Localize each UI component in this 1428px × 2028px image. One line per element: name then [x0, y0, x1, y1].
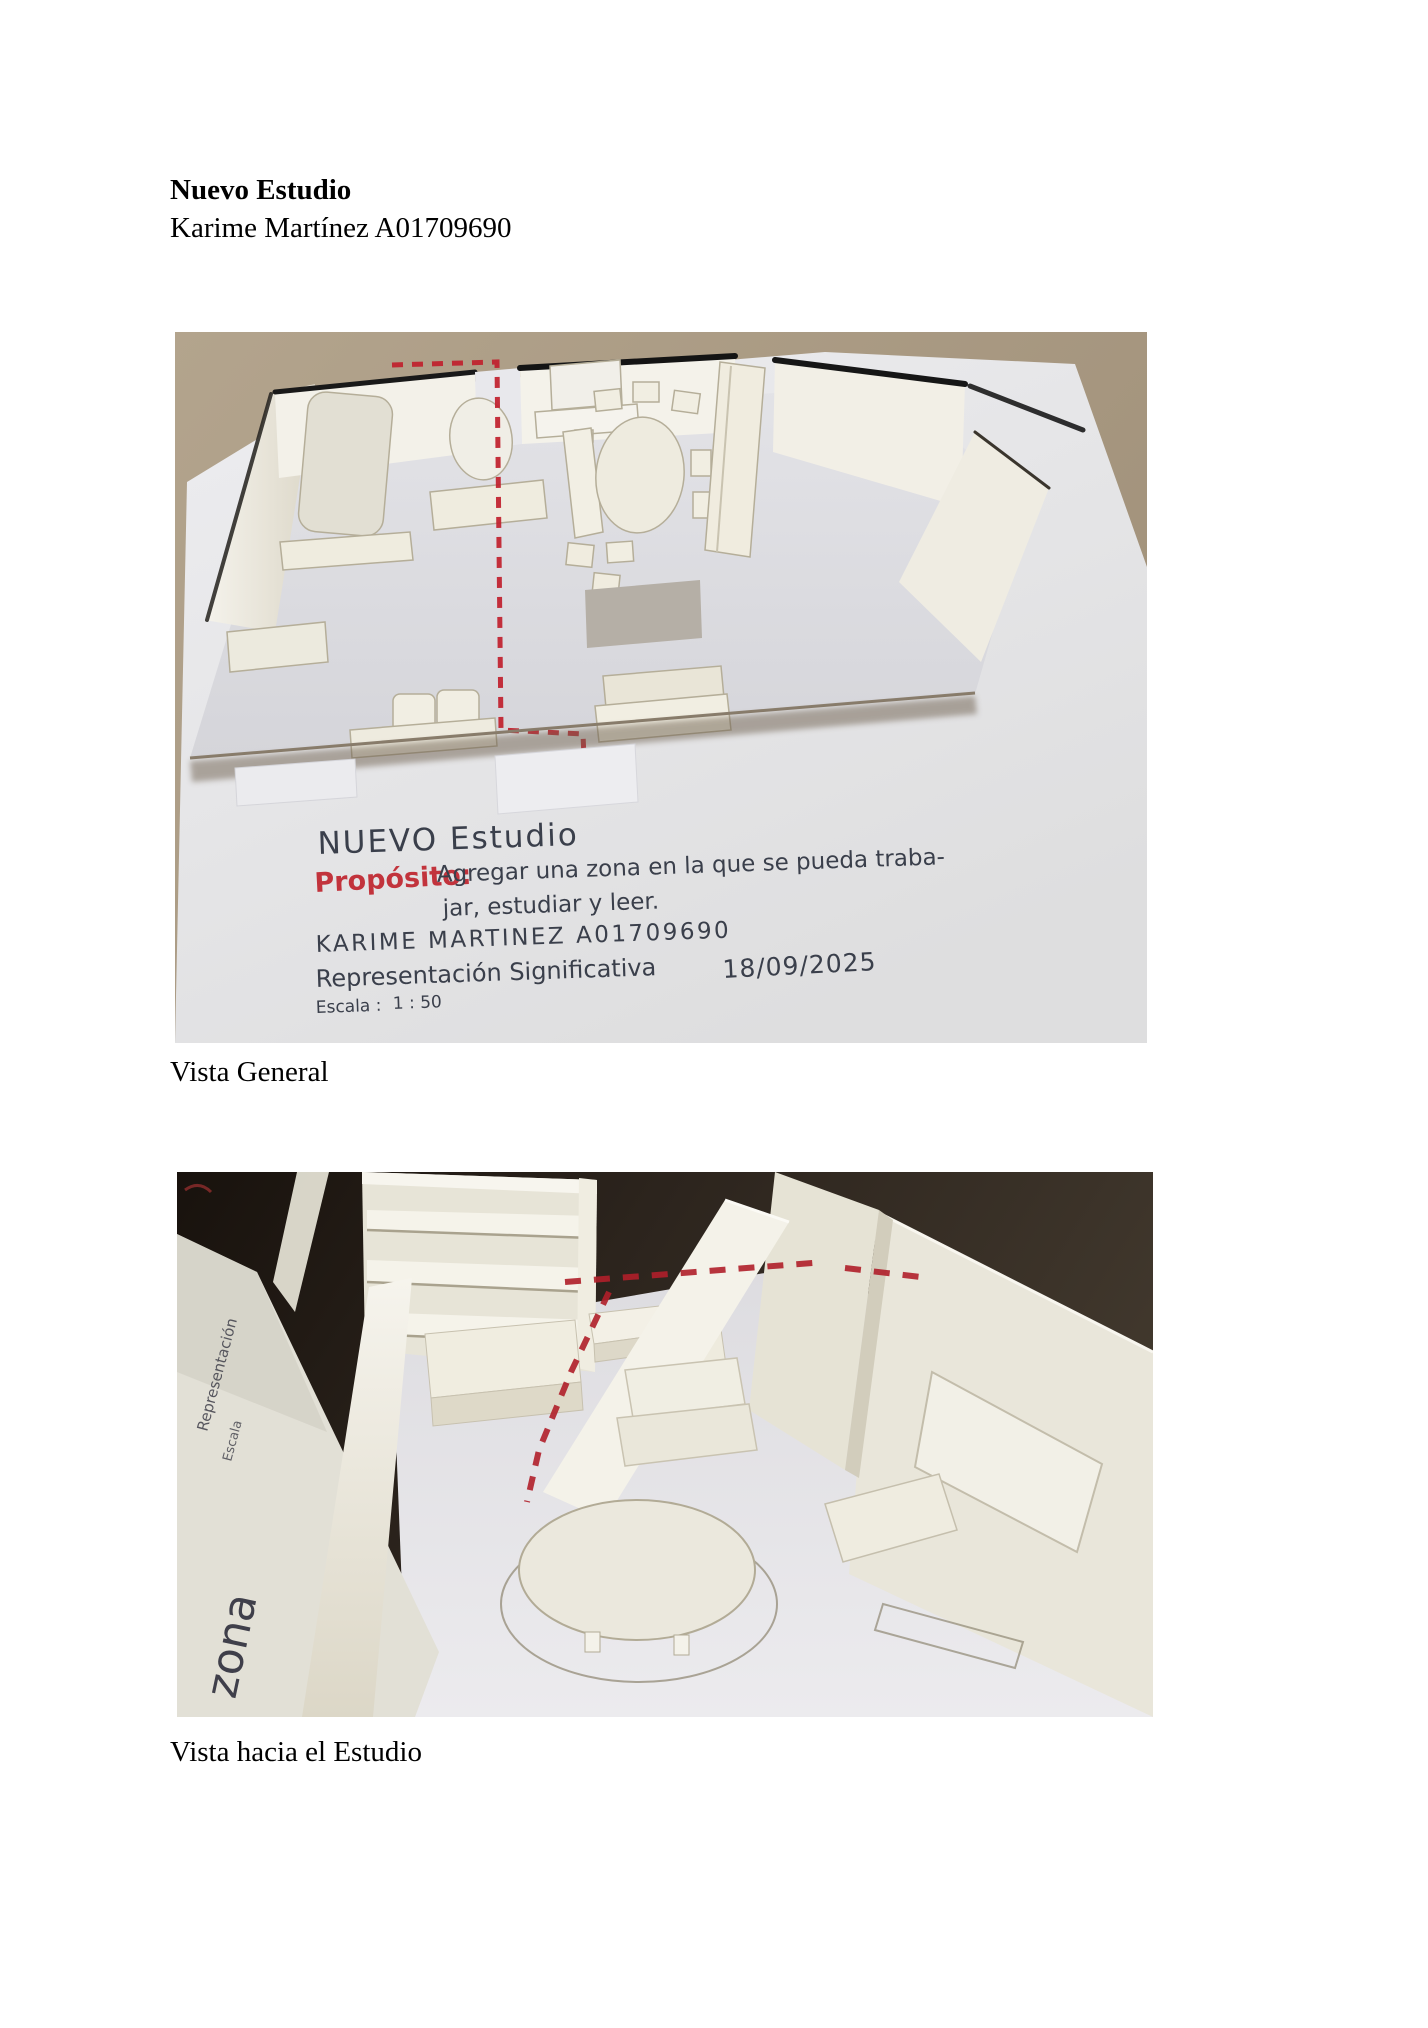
table-leg — [585, 1632, 600, 1652]
chair — [633, 382, 659, 402]
document-page: { "document": { "title": "Nuevo Estudio"… — [0, 0, 1428, 2028]
author-line: Karime Martínez A01709690 — [170, 210, 511, 246]
handwriting-scale-value: 1 : 50 — [392, 992, 442, 1014]
chair — [594, 389, 622, 412]
vista-estudio-illustration: Representación Escala zona — [177, 1172, 1153, 1717]
caption-vista-estudio: Vista hacia el Estudio — [170, 1734, 422, 1770]
table-leg — [674, 1635, 689, 1655]
low-bench — [425, 1320, 583, 1426]
stool — [566, 543, 594, 568]
chair — [691, 450, 711, 476]
armchair — [617, 1358, 757, 1466]
handwriting-scale-label: Escala : — [315, 996, 381, 1018]
chair — [606, 541, 633, 563]
vista-estudio-photo: Representación Escala zona — [177, 1172, 1153, 1717]
chair — [672, 390, 701, 413]
page-title: Nuevo Estudio — [170, 172, 351, 208]
vista-general-illustration: NUEVO Estudio Propósito: Agregar una zon… — [175, 332, 1147, 1043]
rug — [297, 391, 394, 538]
caption-vista-general: Vista General — [170, 1054, 329, 1090]
vista-general-photo: NUEVO Estudio Propósito: Agregar una zon… — [175, 332, 1147, 1043]
front-recess — [585, 580, 702, 648]
